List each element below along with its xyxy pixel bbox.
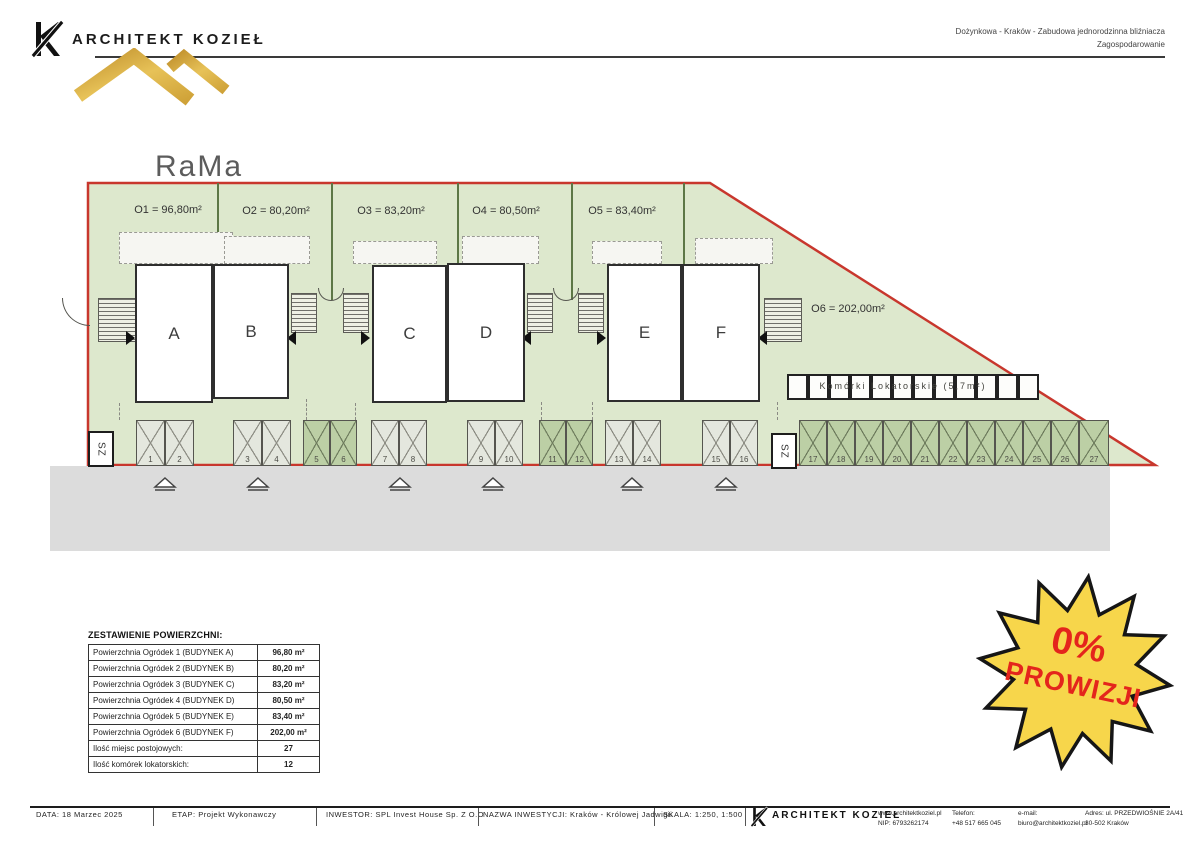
parking-number: 22 [940, 455, 966, 464]
footer-stage: ETAP: Projekt Wykonawczy [172, 810, 276, 819]
footer-divider [745, 808, 746, 826]
parking-number: 12 [567, 455, 592, 464]
parking-number: 8 [400, 455, 426, 464]
summary-table-title: ZESTAWIENIE POWIERZCHNI: [88, 630, 320, 640]
building-e-label: E [639, 323, 650, 343]
parking-number: 6 [331, 455, 356, 464]
parking-number: 16 [731, 455, 757, 464]
footer-phone-label: Telefon: [952, 809, 1001, 819]
row-label: Powierzchnia Ogródek 6 (BUDYNEK F) [89, 725, 258, 741]
garden-divider [331, 183, 333, 300]
footer-investor: INWESTOR: SPL Invest House Sp. Z O.O [326, 810, 484, 819]
gate-box-left-label: SZ [96, 442, 107, 457]
garden-divider [571, 183, 573, 300]
footer-nip: NIP: 6793262174 [878, 819, 942, 829]
row-label: Powierzchnia Ogródek 1 (BUDYNEK A) [89, 645, 258, 661]
gate-box-right-label: SZ [779, 444, 790, 459]
parking-number: 26 [1052, 455, 1078, 464]
row-value: 96,80 m² [258, 645, 320, 661]
garden-label-o4: O4 = 80,50m² [472, 205, 540, 217]
parking-number: 24 [996, 455, 1022, 464]
building-c: C [372, 265, 447, 403]
table-row: Ilość komórek lokatorskich:12 [89, 757, 320, 773]
footer-divider [654, 808, 655, 826]
footer-address-line2: 30-502 Kraków [1085, 819, 1183, 829]
parking-space: 19 [855, 420, 883, 466]
footer-web-nip: www.architektkoziel.pl NIP: 6793262174 [878, 809, 942, 829]
footer-divider [478, 808, 479, 826]
staircase [291, 293, 317, 333]
storage-cell [1018, 374, 1039, 400]
roof-outline [119, 232, 233, 264]
building-c-label: C [403, 324, 415, 344]
parking-space: 4 [262, 420, 291, 466]
parking-space: 22 [939, 420, 967, 466]
garden-label-o1: O1 = 96,80m² [134, 204, 202, 216]
driveway-marker-icon [245, 476, 271, 499]
footer-address-block: Adres: ul. PRZEDWIOŚNIE 2A/41 30-502 Kra… [1085, 809, 1183, 829]
table-row: Ilość miejsc postojowych:27 [89, 741, 320, 757]
parking-space: 15 [702, 420, 730, 466]
footer-email-label: e-mail: [1018, 809, 1087, 819]
project-title-line2: Zagospodarowanie [956, 39, 1165, 52]
area-summary: ZESTAWIENIE POWIERZCHNI: Powierzchnia Og… [88, 630, 320, 773]
building-b: B [213, 264, 289, 399]
row-label: Powierzchnia Ogródek 4 (BUDYNEK D) [89, 693, 258, 709]
parking-number: 19 [856, 455, 882, 464]
driveway-marker-icon [480, 476, 506, 499]
parking-space: 9 [467, 420, 495, 466]
building-f-label: F [716, 323, 726, 343]
parking-number: 14 [634, 455, 660, 464]
row-label: Ilość miejsc postojowych: [89, 741, 258, 757]
parking-number: 10 [496, 455, 522, 464]
table-row: Powierzchnia Ogródek 1 (BUDYNEK A)96,80 … [89, 645, 320, 661]
building-d: D [447, 263, 525, 402]
roof-outline [592, 241, 662, 264]
parking-space: 20 [883, 420, 911, 466]
dashed-projection [592, 402, 593, 420]
dashed-projection [306, 399, 307, 420]
driveway-marker-icon [619, 476, 645, 499]
driveway-marker-icon [152, 476, 178, 499]
row-value: 202,00 m² [258, 725, 320, 741]
gate-box-right: SZ [771, 433, 797, 469]
footer-rule [30, 806, 1170, 808]
garden-label-o5: O5 = 83,40m² [588, 205, 656, 217]
footer-investment: NAZWA INWESTYCJI: Kraków - Królowej Jadw… [483, 810, 672, 819]
garden-label-o3: O3 = 83,20m² [357, 205, 425, 217]
row-value: 83,40 m² [258, 709, 320, 725]
row-value: 80,50 m² [258, 693, 320, 709]
garden-label-o6: O6 = 202,00m² [811, 303, 885, 315]
table-row: Powierzchnia Ogródek 4 (BUDYNEK D)80,50 … [89, 693, 320, 709]
row-value: 83,20 m² [258, 677, 320, 693]
parking-number: 4 [263, 455, 290, 464]
building-a: A [135, 264, 213, 403]
row-value: 27 [258, 741, 320, 757]
staircase [764, 298, 802, 342]
parking-number: 11 [540, 455, 565, 464]
project-title: Dożynkowa - Kraków - Zabudowa jednorodzi… [956, 26, 1165, 52]
row-value: 12 [258, 757, 320, 773]
parking-space: 5 [303, 420, 330, 466]
footer-k-logo-icon [750, 806, 768, 833]
parking-number: 27 [1080, 455, 1108, 464]
garden-label-o2: O2 = 80,20m² [242, 205, 310, 217]
parking-space: 12 [566, 420, 593, 466]
footer-phone-block: Telefon: +48 517 665 045 [952, 809, 1001, 829]
parking-space: 26 [1051, 420, 1079, 466]
footer-divider [153, 808, 154, 826]
parking-number: 23 [968, 455, 994, 464]
table-row: Powierzchnia Ogródek 3 (BUDYNEK C)83,20 … [89, 677, 320, 693]
table-row: Powierzchnia Ogródek 6 (BUDYNEK F)202,00… [89, 725, 320, 741]
parking-space: 8 [399, 420, 427, 466]
parking-space: 23 [967, 420, 995, 466]
row-label: Powierzchnia Ogródek 2 (BUDYNEK B) [89, 661, 258, 677]
row-value: 80,20 m² [258, 661, 320, 677]
footer-divider [316, 808, 317, 826]
parking-number: 7 [372, 455, 398, 464]
roof-outline [353, 241, 437, 264]
parking-space: 11 [539, 420, 566, 466]
parking-number: 20 [884, 455, 910, 464]
driveway-marker-icon [713, 476, 739, 499]
architect-k-logo-icon [30, 20, 64, 58]
footer-address-line1: Adres: ul. PRZEDWIOŚNIE 2A/41 [1085, 809, 1183, 819]
parking-space: 6 [330, 420, 357, 466]
gate-box-left: SZ [88, 431, 114, 467]
header-rule [95, 56, 1165, 58]
parking-space: 25 [1023, 420, 1051, 466]
parking-space: 18 [827, 420, 855, 466]
building-d-label: D [480, 323, 492, 343]
dashed-projection [119, 403, 120, 420]
row-label: Ilość komórek lokatorskich: [89, 757, 258, 773]
parking-space: 17 [799, 420, 827, 466]
footer-email: biuro@architektkoziel.pl [1018, 819, 1087, 829]
entrance-arrow-icon [597, 331, 606, 345]
parking-space: 21 [911, 420, 939, 466]
building-f: F [682, 264, 760, 402]
parking-number: 9 [468, 455, 494, 464]
drawing-sheet: ARCHITEKT KOZIEŁ Dożynkowa - Kraków - Za… [0, 0, 1200, 842]
footer-scale: SKALA: 1:250, 1:500 [663, 810, 743, 819]
parking-number: 25 [1024, 455, 1050, 464]
parking-space: 2 [165, 420, 194, 466]
parking-space: 27 [1079, 420, 1109, 466]
parking-space: 24 [995, 420, 1023, 466]
parking-space: 13 [605, 420, 633, 466]
parking-number: 1 [137, 455, 164, 464]
parking-space: 14 [633, 420, 661, 466]
row-label: Powierzchnia Ogródek 5 (BUDYNEK E) [89, 709, 258, 725]
building-b-label: B [245, 322, 256, 342]
staircase [578, 293, 604, 333]
parking-space: 16 [730, 420, 758, 466]
table-row: Powierzchnia Ogródek 5 (BUDYNEK E)83,40 … [89, 709, 320, 725]
dashed-projection [777, 402, 778, 420]
parking-number: 2 [166, 455, 193, 464]
footer-email-block: e-mail: biuro@architektkoziel.pl [1018, 809, 1087, 829]
driveway-marker-icon [387, 476, 413, 499]
table-row: Powierzchnia Ogródek 2 (BUDYNEK B)80,20 … [89, 661, 320, 677]
parking-space: 7 [371, 420, 399, 466]
parking-number: 18 [828, 455, 854, 464]
entrance-arrow-icon [361, 331, 370, 345]
dashed-projection [355, 403, 356, 420]
parking-number: 3 [234, 455, 261, 464]
row-label: Powierzchnia Ogródek 3 (BUDYNEK C) [89, 677, 258, 693]
rama-home-logo: RaMa HOME [70, 48, 240, 178]
footer-date: DATA: 18 Marzec 2025 [36, 810, 123, 819]
footer-phone: +48 517 665 045 [952, 819, 1001, 829]
promo-badge: 0% PROWIZJI [962, 559, 1188, 785]
staircase [343, 293, 369, 333]
storage-row-label: Komórki Lokatorskie (5,7m²) [795, 381, 1011, 391]
parking-space: 3 [233, 420, 262, 466]
rama-home-roof-icon [70, 48, 240, 148]
project-title-line1: Dożynkowa - Kraków - Zabudowa jednorodzi… [956, 26, 1165, 39]
roof-outline [462, 236, 539, 264]
parking-space: 1 [136, 420, 165, 466]
parking-number: 13 [606, 455, 632, 464]
entrance-arrow-icon [126, 331, 135, 345]
parking-space: 10 [495, 420, 523, 466]
parking-number: 17 [800, 455, 826, 464]
roof-outline [695, 238, 773, 264]
dashed-projection [541, 402, 542, 420]
footer-website: www.architektkoziel.pl [878, 809, 942, 819]
parking-number: 5 [304, 455, 329, 464]
header-brand-label: ARCHITEKT KOZIEŁ [72, 31, 266, 48]
building-a-label: A [168, 324, 179, 344]
staircase [527, 293, 553, 333]
building-e: E [607, 264, 682, 402]
summary-table: Powierzchnia Ogródek 1 (BUDYNEK A)96,80 … [88, 644, 320, 773]
parking-number: 15 [703, 455, 729, 464]
roof-outline [224, 236, 310, 264]
road [50, 466, 1110, 551]
parking-number: 21 [912, 455, 938, 464]
logo-text-rama: RaMa [155, 150, 243, 184]
